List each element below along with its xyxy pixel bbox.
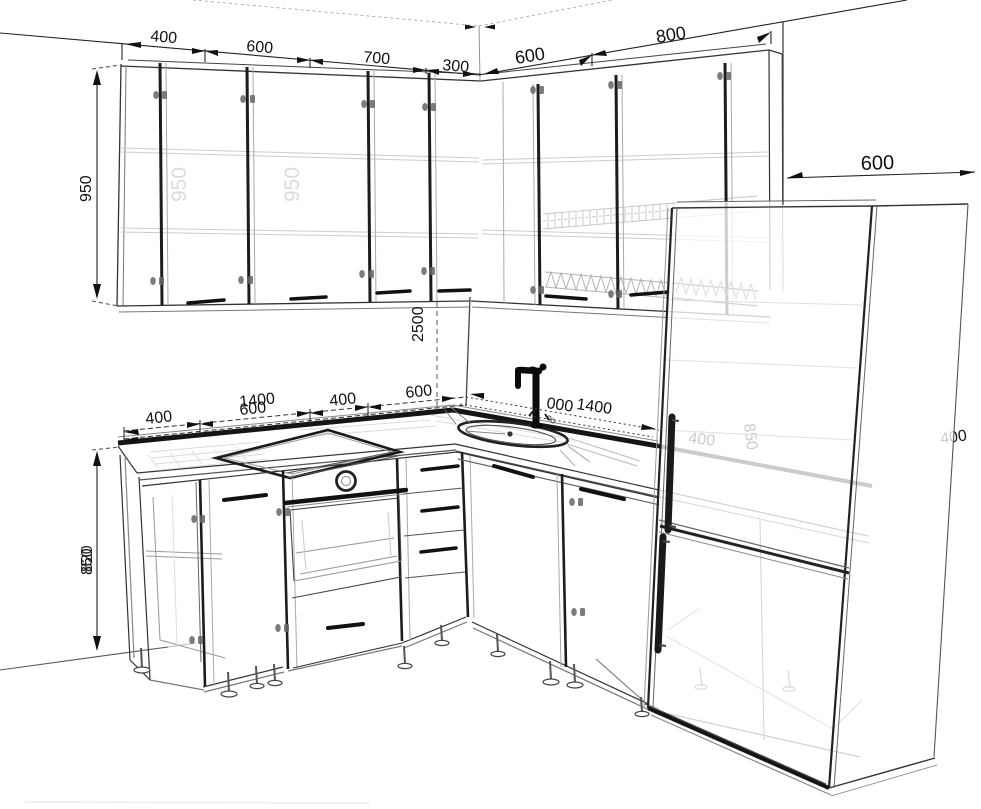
svg-text:820: 820 — [79, 545, 96, 572]
svg-text:700: 700 — [363, 49, 391, 68]
svg-text:400: 400 — [145, 408, 173, 428]
svg-text:950: 950 — [281, 167, 304, 202]
svg-text:400: 400 — [150, 28, 178, 47]
svg-text:300: 300 — [442, 57, 470, 76]
svg-text:950: 950 — [168, 167, 191, 202]
svg-text:600: 600 — [246, 38, 274, 57]
svg-text:400: 400 — [329, 390, 357, 410]
svg-text:2500: 2500 — [410, 306, 427, 342]
svg-text:950: 950 — [78, 175, 95, 202]
svg-text:600: 600 — [860, 152, 894, 175]
svg-text:600: 600 — [239, 399, 267, 419]
svg-text:600: 600 — [405, 382, 433, 402]
